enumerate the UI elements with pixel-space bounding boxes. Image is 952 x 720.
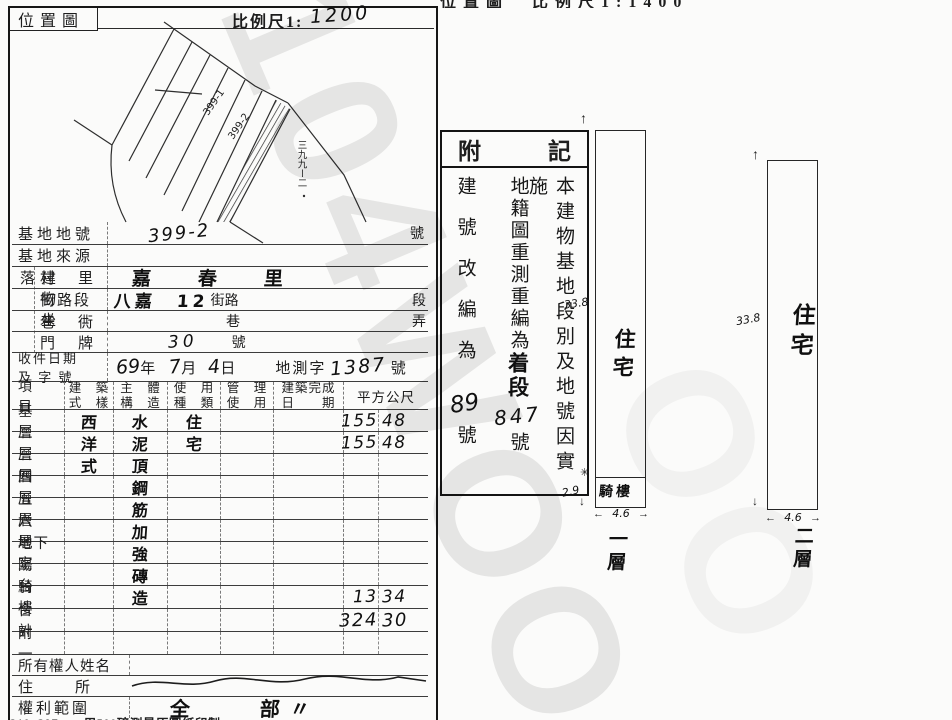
dim-arrow-left-icon: ← [593,508,604,520]
dim-arrow-left-icon: ← [765,512,776,524]
scale-value-handwritten: 1200 [309,2,371,28]
header-rule: 比例尺1: 1200 [98,8,434,29]
annex-left-unit: 號 [455,425,476,444]
annex-title-left: 附 [458,132,481,166]
field-row-lot-number: 基地地號 399-2 號 [12,222,428,245]
dim-arrow-up-icon: ↑ [580,112,587,128]
structure-char: 頂 [132,453,150,477]
floor2-name: 二層 [787,526,817,572]
style-char: 洋 [80,431,98,455]
style-char: 式 [80,453,98,477]
annex-left-printed: 建號改編為 [455,176,476,381]
field-row-street: 街路段 八嘉 12 街路 段 [12,289,428,311]
month-unit: 月 [181,357,196,378]
day-unit: 日 [220,357,235,378]
top-edge-text-fragment: 位置圖 比例尺1:1400 [440,0,770,8]
doc-word-prefix: 地測字 [275,357,326,378]
door-plate-unit: 號 [232,332,246,352]
dim-arrow-down-icon: ↓ [579,494,585,509]
header-area: 平方公尺 [357,386,415,406]
owner-name-label: 所有權人姓名 [12,655,130,675]
dim-star-icon: ✳ [580,466,589,479]
table-row-total: 合 計 32430 [12,609,428,632]
floor-table-header: 項 目 建 築式 樣 主 體構 造 使 用種 類 管 理使 用 建築完成日 期 … [12,382,428,410]
annex-mid-handwritten-section: 着段 [506,352,530,400]
dim-arrow-up-icon: ↑ [752,148,759,164]
table-row-balcony: 陽 台 磚 [12,564,428,586]
header-manage-1: 管 理 [227,381,268,395]
annex-text-middle-column: 地籍圖重測重編為着段847號 [494,176,541,454]
table-row-arcade: 騎 樓 造 1334 [12,586,428,609]
table-row-floor3: 三 層 式 頂 [12,454,428,476]
total-dec: 30 [382,609,409,631]
year-unit: 年 [140,357,155,378]
lot-source-label: 基地來源 [12,245,108,266]
street-value: 八嘉 12 [113,287,209,312]
floor1-width-dim: 4.6 [612,507,630,520]
table-row-floor2: 二 層 洋 泥 宅 15548 [12,432,428,454]
address-label: 住 所 [12,676,130,696]
structure-char: 加 [132,519,150,543]
lane-label: 巷 衖 [12,311,108,331]
survey-dot [303,195,305,197]
area-int: 155 [341,410,379,431]
annex-text-left-column: 建號改編為89號 [450,176,479,444]
header-complete-2: 日 期 [281,396,335,410]
table-row-annex1: 附 一 [12,632,428,655]
dim-arrow-down-icon: ↓ [752,494,758,509]
annex-mid-printed: 地籍圖重測重編為 [508,176,529,352]
header-complete-1: 建築完成 [281,381,335,395]
style-char: 西 [80,409,98,433]
header-style-2: 式 樣 [69,396,110,410]
lot-number-label: 基地地號 [12,222,108,244]
annex-mid-lot-number: 847 [493,402,542,431]
annex-mid-unit: 號 [508,432,529,454]
floor1-arcade-dim: 2.9 [561,483,581,499]
annex-title: 附 記 [442,132,587,168]
header-style-1: 建 築 [69,381,110,395]
structure-char: 水 [132,409,150,433]
floor2-width-dim-line: ← 4.6 → [765,511,821,524]
annex-left-building-number: 89 [448,389,481,419]
field-row-village: 村 里 嘉 春 里 [12,267,428,289]
receipt-day: 4 [208,356,222,379]
annex-title-right: 記 [548,132,571,166]
lane-printed: 巷 [226,311,240,331]
floor1-outline [595,130,646,477]
receipt-label-line1: 收件日期 [18,348,78,367]
site-plan-sketch: 399-1 399-2 三九九ー二 [12,28,428,222]
area-dec: 34 [382,587,407,608]
receipt-month: 7 [168,355,182,378]
header-structure-1: 主 體 [120,381,161,395]
annex-box: 附 記 本建物基地段別及地號因實施 地籍圖重測重編為着段847號 建號改編為89… [440,130,589,496]
dim-arrow-right-icon: → [638,508,649,520]
table-row-basement: 地下室 強 [12,542,428,564]
header-manage-2: 使 用 [227,396,268,410]
area-dec: 48 [382,432,407,453]
table-row-floor5: 五 層 筋 [12,498,428,520]
structure-char: 造 [132,585,150,609]
use-char: 宅 [185,431,203,455]
floor2-use-label: 住宅 [781,303,819,363]
receipt-year: 69 [115,355,141,379]
table-row-floor6: 六 層 加 [12,520,428,542]
field-row-receipt: 收件日期 及 字 號 69 年 7 月 4 日 地測字 1387 號 [12,353,428,382]
door-plate-value: 30 [167,331,198,353]
floor1-use-label: 住宅 [606,328,640,384]
structure-char: 泥 [132,431,150,455]
alley-unit: 弄 [412,311,426,331]
header-structure-2: 構 造 [120,396,161,410]
floor1-arcade-label: 騎樓 [598,481,633,501]
floor2-width-dim: 4.6 [784,511,802,524]
table-row-floor1: 基 層 西 水 住 15548 [12,410,428,432]
use-char: 住 [185,409,203,433]
header-use-1: 使 用 [174,381,215,395]
scanned-survey-document: 位置圖 比例尺1:1400 位置圖 比例尺1: 1200 [0,0,952,720]
area-int: 13 [353,587,378,608]
street-label: 街路段 [12,289,108,310]
dim-arrow-right-icon: → [810,512,821,524]
parcel-label-vertical: 三九九ー二 [296,140,308,188]
total-int: 324 [339,609,379,631]
lot-number-value: 399-2 [147,219,211,246]
area-int: 155 [341,432,379,453]
floor2-height-dim: 33.8 [735,311,761,328]
street-section-unit: 段 [412,290,426,310]
top-edge-text: 位置圖 比例尺1:1400 [440,0,770,8]
doc-number-unit: 號 [391,357,406,378]
street-printed-suffix: 街路 [211,290,239,310]
village-label: 村 里 [12,267,108,288]
parcel-lines [74,22,366,243]
structure-char: 鋼 [132,475,150,499]
structure-char: 強 [132,541,150,565]
floor1-name: 一層 [601,529,631,575]
area-dec: 48 [382,410,407,431]
structure-char: 筋 [132,497,150,521]
parcel-label-upper: 399-1 [201,88,227,118]
lot-number-unit: 號 [410,223,424,243]
field-row-lane: 巷 衖 巷 弄 [12,311,428,332]
doc-number: 1387 [330,354,388,381]
table-row-floor4: 四 層 鋼 [12,476,428,498]
structure-char: 磚 [132,563,150,587]
floor1-width-dim-line: ← 4.6 → [593,507,649,520]
paper-spec-note: 210×297mm 用500磅測量原圖紙印製 [10,713,221,720]
header-use-2: 種 類 [174,396,215,410]
